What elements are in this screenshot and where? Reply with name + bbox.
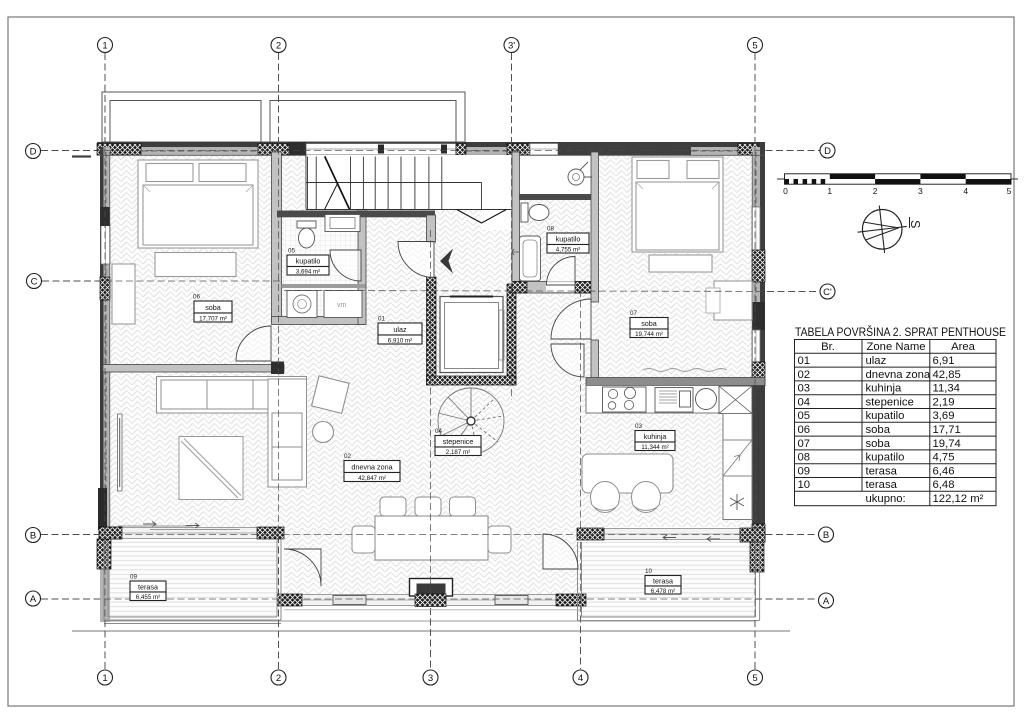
svg-text:Area: Area (951, 341, 976, 353)
svg-text:dnevna zona: dnevna zona (866, 369, 931, 381)
svg-text:kupatilo: kupatilo (296, 257, 321, 266)
svg-text:terasa: terasa (866, 479, 898, 491)
svg-text:2: 2 (276, 673, 281, 684)
svg-text:ukupno:: ukupno: (866, 493, 906, 505)
svg-text:kupatilo: kupatilo (866, 452, 905, 464)
svg-text:kuhinja: kuhinja (644, 432, 667, 441)
svg-text:42,847 m²: 42,847 m² (358, 475, 386, 482)
svg-text:C': C' (823, 287, 832, 298)
svg-text:11,344 m²: 11,344 m² (641, 444, 668, 451)
svg-text:08: 08 (798, 452, 811, 464)
svg-text:09: 09 (130, 574, 138, 581)
svg-text:terasa: terasa (866, 465, 898, 477)
svg-text:03: 03 (798, 383, 811, 395)
svg-text:B: B (823, 530, 829, 541)
svg-text:07: 07 (798, 438, 811, 450)
svg-text:19,74: 19,74 (933, 438, 961, 450)
svg-text:3: 3 (428, 673, 433, 684)
svg-text:soba: soba (641, 319, 657, 328)
svg-text:17,71: 17,71 (933, 424, 961, 436)
svg-text:2,187 m²: 2,187 m² (446, 449, 470, 456)
svg-text:10: 10 (645, 568, 653, 575)
svg-text:6,455 m²: 6,455 m² (136, 594, 160, 601)
svg-text:06: 06 (798, 424, 811, 436)
svg-text:4: 4 (963, 186, 968, 196)
svg-text:3': 3' (508, 40, 515, 51)
svg-text:5: 5 (1007, 186, 1012, 196)
svg-text:08: 08 (547, 226, 555, 233)
svg-text:0: 0 (783, 186, 788, 196)
svg-text:soba: soba (866, 424, 891, 436)
svg-text:D: D (824, 146, 831, 157)
svg-text:2,19: 2,19 (933, 396, 955, 408)
svg-text:4,755 m²: 4,755 m² (556, 247, 580, 254)
svg-text:stepenice: stepenice (866, 396, 914, 408)
svg-text:4: 4 (578, 673, 583, 684)
svg-text:02: 02 (798, 369, 811, 381)
svg-text:kupatilo: kupatilo (556, 235, 581, 244)
svg-text:Zone Name: Zone Name (866, 341, 925, 353)
svg-text:04: 04 (798, 396, 811, 408)
svg-text:Br.: Br. (821, 341, 835, 353)
svg-text:5: 5 (752, 673, 757, 684)
svg-text:6,478 m²: 6,478 m² (651, 588, 675, 595)
svg-text:S: S (908, 220, 922, 228)
svg-text:01: 01 (798, 355, 811, 367)
svg-text:11,34: 11,34 (933, 383, 960, 395)
svg-text:6,48: 6,48 (933, 479, 955, 491)
svg-text:4,75: 4,75 (933, 452, 955, 464)
svg-text:07: 07 (630, 310, 638, 317)
svg-text:10: 10 (798, 479, 811, 491)
svg-text:A: A (823, 596, 830, 607)
svg-text:06: 06 (193, 294, 201, 301)
svg-text:19,744 m²: 19,744 m² (635, 331, 663, 338)
svg-text:ulaz: ulaz (866, 355, 887, 367)
svg-text:2: 2 (873, 186, 878, 196)
svg-text:B: B (30, 530, 36, 541)
svg-text:01: 01 (378, 316, 386, 323)
svg-text:03: 03 (635, 423, 643, 430)
svg-text:09: 09 (798, 465, 811, 477)
svg-text:6,910 m²: 6,910 m² (388, 338, 412, 345)
svg-text:terasa: terasa (653, 577, 673, 586)
svg-text:04: 04 (435, 428, 443, 435)
svg-text:122,12 m²: 122,12 m² (933, 493, 984, 505)
svg-text:stepenice: stepenice (443, 437, 474, 446)
svg-text:1: 1 (827, 186, 832, 196)
svg-text:terasa: terasa (138, 582, 158, 591)
svg-text:kupatilo: kupatilo (866, 410, 905, 422)
svg-text:2: 2 (276, 40, 281, 51)
svg-text:C: C (31, 276, 38, 287)
svg-text:3: 3 (918, 186, 923, 196)
svg-text:1: 1 (102, 40, 107, 51)
svg-text:6,46: 6,46 (933, 465, 955, 477)
svg-text:3,69: 3,69 (933, 410, 955, 422)
svg-text:42,85: 42,85 (933, 369, 961, 381)
svg-text:kuhinja: kuhinja (866, 383, 903, 395)
svg-text:3,694 m²: 3,694 m² (296, 269, 320, 276)
svg-text:6,91: 6,91 (933, 355, 955, 367)
svg-text:05: 05 (288, 248, 296, 255)
svg-text:TABELA POVRŠINA 2. SPRAT PENTH: TABELA POVRŠINA 2. SPRAT PENTHOUSE (795, 324, 1006, 339)
svg-text:05: 05 (798, 410, 811, 422)
svg-text:17,707 m²: 17,707 m² (199, 316, 227, 323)
svg-text:ulaz: ulaz (393, 325, 407, 334)
svg-text:vm: vm (337, 302, 347, 309)
svg-text:1: 1 (102, 673, 107, 684)
svg-text:dnevna zona: dnevna zona (351, 463, 392, 472)
svg-text:D: D (30, 146, 37, 157)
svg-text:5: 5 (752, 40, 757, 51)
svg-text:A: A (30, 594, 37, 605)
svg-text:soba: soba (866, 438, 891, 450)
svg-text:soba: soba (205, 303, 221, 312)
svg-text:02: 02 (344, 453, 352, 460)
